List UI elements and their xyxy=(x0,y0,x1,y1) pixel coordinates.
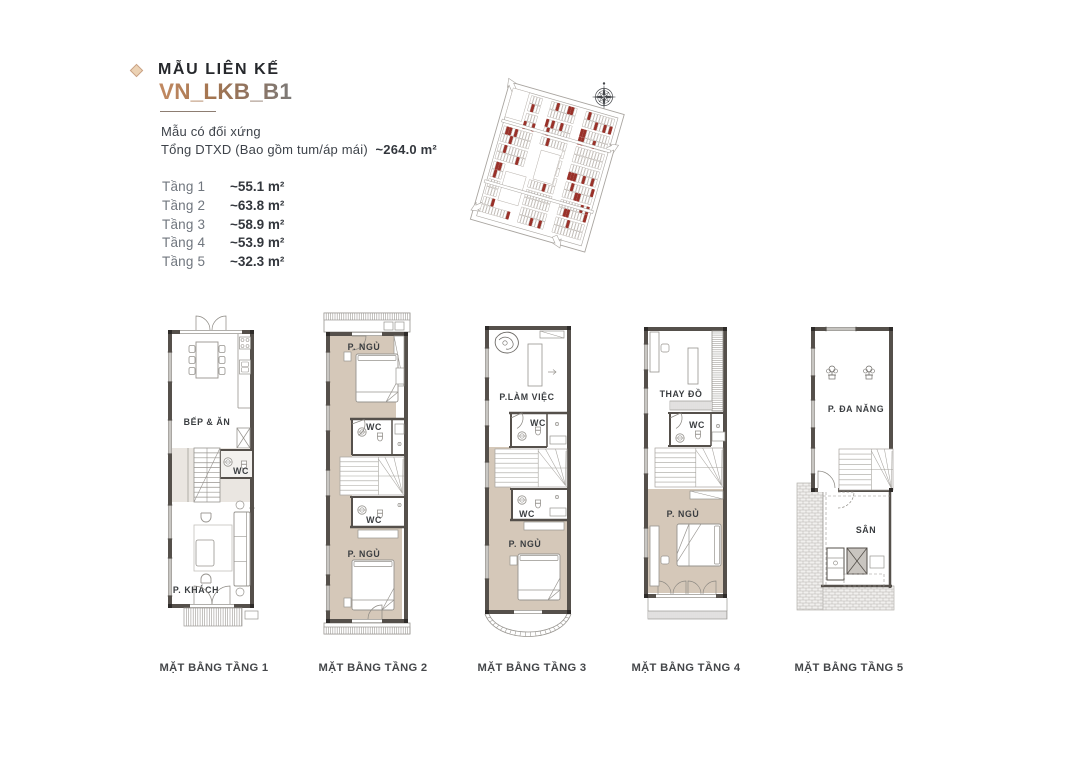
svg-text:P. NGỦ: P. NGỦ xyxy=(348,341,381,352)
svg-text:WC: WC xyxy=(366,515,382,525)
svg-text:P. KHÁCH: P. KHÁCH xyxy=(173,585,219,595)
svg-text:P. NGỦ: P. NGỦ xyxy=(348,548,381,559)
svg-text:THAY ĐỒ: THAY ĐỒ xyxy=(660,388,703,399)
svg-text:P. NGỦ: P. NGỦ xyxy=(667,508,700,519)
svg-text:P.LÀM VIỆC: P.LÀM VIỆC xyxy=(499,391,554,402)
svg-text:WC: WC xyxy=(519,509,535,519)
svg-text:WC: WC xyxy=(366,422,382,432)
svg-text:WC: WC xyxy=(530,418,546,428)
svg-text:WC: WC xyxy=(689,420,705,430)
svg-text:WC: WC xyxy=(233,466,249,476)
svg-text:MẶT BẰNG TẦNG 2: MẶT BẰNG TẦNG 2 xyxy=(319,661,428,674)
svg-text:MẶT BẰNG TẦNG 5: MẶT BẰNG TẦNG 5 xyxy=(795,661,904,674)
svg-text:MẶT BẰNG TẦNG 1: MẶT BẰNG TẦNG 1 xyxy=(160,661,269,674)
svg-text:MẶT BẰNG TẦNG 4: MẶT BẰNG TẦNG 4 xyxy=(632,661,741,674)
svg-text:P. NGỦ: P. NGỦ xyxy=(509,538,542,549)
svg-text:BẾP & ĂN: BẾP & ĂN xyxy=(184,417,231,427)
svg-text:P. ĐA NĂNG: P. ĐA NĂNG xyxy=(828,404,884,414)
svg-text:MẶT BẰNG TẦNG 3: MẶT BẰNG TẦNG 3 xyxy=(478,661,587,674)
svg-text:SÂN: SÂN xyxy=(856,524,876,535)
